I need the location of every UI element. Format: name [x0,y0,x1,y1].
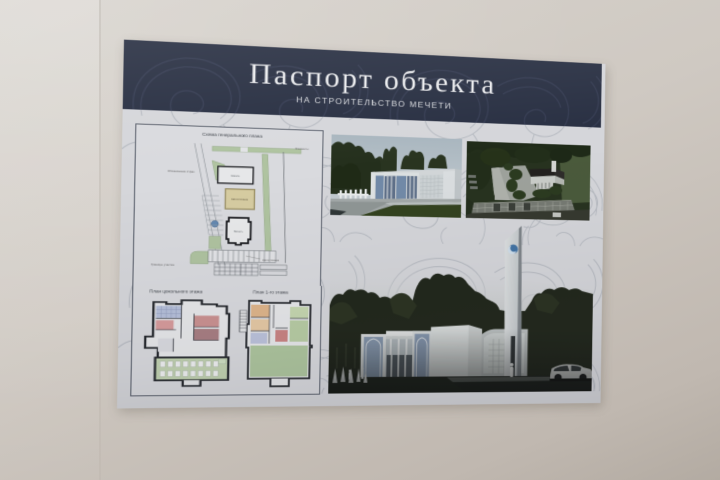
svg-text:Элементы: Элементы [295,147,309,151]
svg-text:Автостоянка: Автостоянка [231,197,248,201]
svg-text:План цокольного этажа: План цокольного этажа [149,289,202,295]
svg-text:Схема генерального плана: Схема генерального плана [202,132,263,140]
svg-text:Автостоянка: Автостоянка [262,258,279,262]
svg-text:Мечеть: Мечеть [234,230,244,234]
svg-text:Школа: Школа [231,174,240,178]
svg-text:План 1-го этажа: План 1-го этажа [253,290,289,296]
svg-text:Границы участка: Границы участка [151,263,175,267]
svg-text:Обозначение 2 фаз: Обозначение 2 фаз [168,169,196,174]
